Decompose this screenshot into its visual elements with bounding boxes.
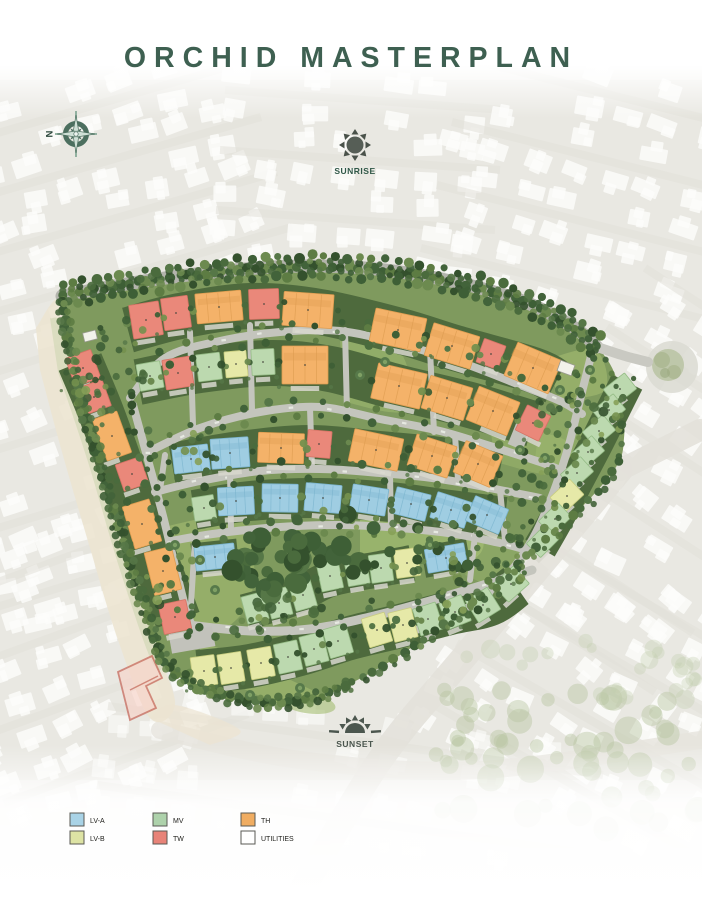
- svg-text:MV: MV: [173, 818, 184, 825]
- svg-text:TH: TH: [261, 818, 270, 825]
- svg-text:SUNSET: SUNSET: [336, 739, 374, 749]
- svg-text:LV-B: LV-B: [90, 836, 105, 843]
- svg-text:TW: TW: [173, 836, 184, 843]
- svg-text:N: N: [45, 130, 56, 137]
- svg-text:UTILITIES: UTILITIES: [261, 836, 294, 843]
- svg-text:SUNRISE: SUNRISE: [334, 166, 375, 176]
- svg-text:ORCHID MASTERPLAN: ORCHID MASTERPLAN: [124, 42, 578, 74]
- svg-text:LV-A: LV-A: [90, 818, 105, 825]
